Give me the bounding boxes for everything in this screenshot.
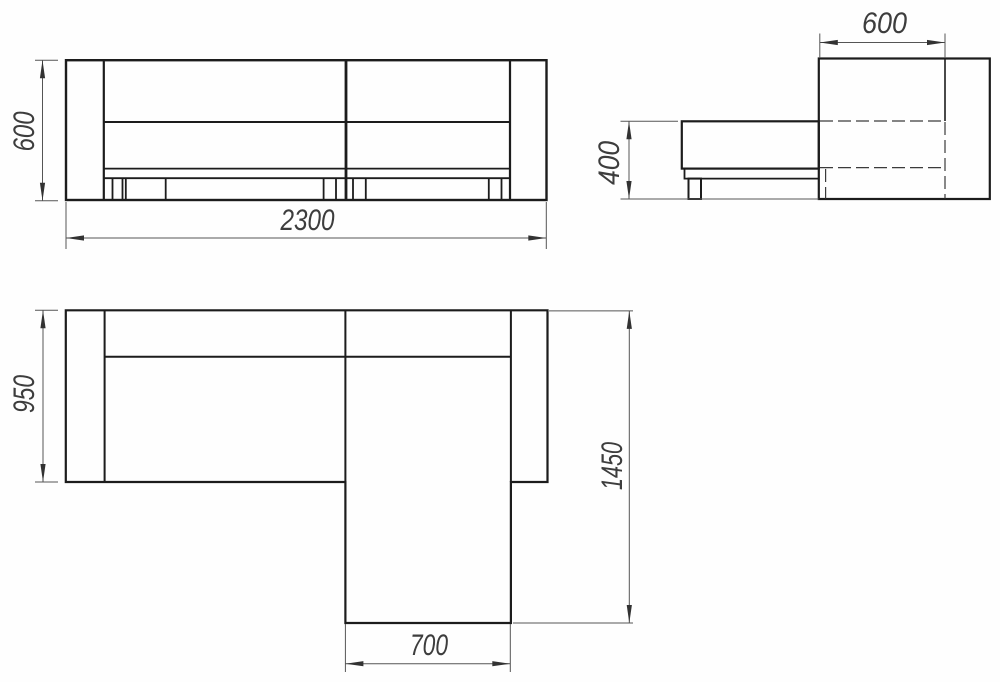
svg-text:700: 700 bbox=[410, 629, 448, 662]
svg-text:950: 950 bbox=[8, 375, 41, 413]
svg-text:600: 600 bbox=[862, 7, 907, 40]
svg-text:1450: 1450 bbox=[596, 442, 629, 490]
svg-text:2300: 2300 bbox=[280, 204, 335, 237]
svg-text:400: 400 bbox=[593, 141, 626, 185]
svg-text:600: 600 bbox=[8, 111, 41, 151]
